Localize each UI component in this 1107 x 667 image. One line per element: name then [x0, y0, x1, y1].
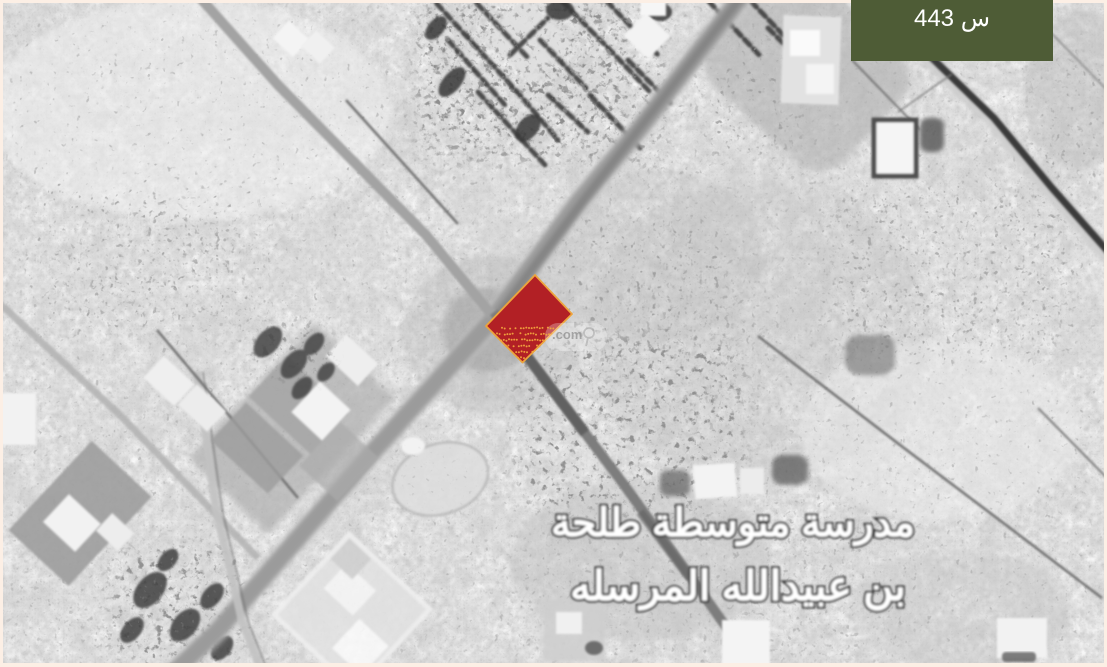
svg-text:س 443: س 443 [914, 5, 990, 32]
svg-text:بن عبيدالله المرسله: بن عبيدالله المرسله [570, 563, 906, 611]
svg-text:مدرسة متوسطة طلحة: مدرسة متوسطة طلحة [551, 502, 915, 547]
svg-text:.com: .com [552, 327, 582, 342]
